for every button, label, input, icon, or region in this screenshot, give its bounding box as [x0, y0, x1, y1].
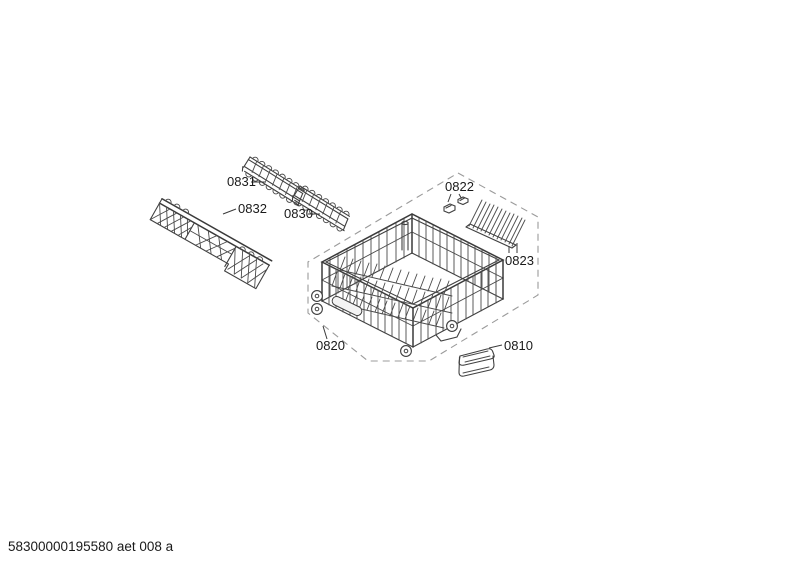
parts-diagram-page: 0831 0832 0830 0822 0823 0820 0810 58300… [0, 0, 800, 566]
callout-0822-label: 0822 [445, 179, 474, 194]
callout-0832: 0832 [223, 201, 267, 216]
drawing-number: 58300000195580 aet 008 a [8, 539, 174, 554]
callout-0823: 0823 [505, 243, 534, 268]
callout-0820-label: 0820 [316, 338, 345, 353]
part-0820-lower-basket [312, 214, 503, 356]
callout-0830-label: 0830 [284, 206, 313, 221]
exploded-parts-drawing: 0831 0832 0830 0822 0823 0820 0810 58300… [0, 0, 800, 566]
callout-0832-leader [223, 209, 236, 214]
callout-0810-label: 0810 [504, 338, 533, 353]
part-0822-clips [444, 197, 468, 213]
part-0823-tine-row [466, 200, 525, 248]
part-0810-tray [459, 349, 494, 376]
callout-0820: 0820 [316, 326, 345, 353]
callout-0831-label: 0831 [227, 174, 256, 189]
callout-0823-label: 0823 [505, 253, 534, 268]
callout-0822-leader [448, 194, 462, 202]
callout-0810-leader [489, 345, 502, 348]
callout-0810: 0810 [489, 338, 533, 353]
callout-0832-label: 0832 [238, 201, 267, 216]
